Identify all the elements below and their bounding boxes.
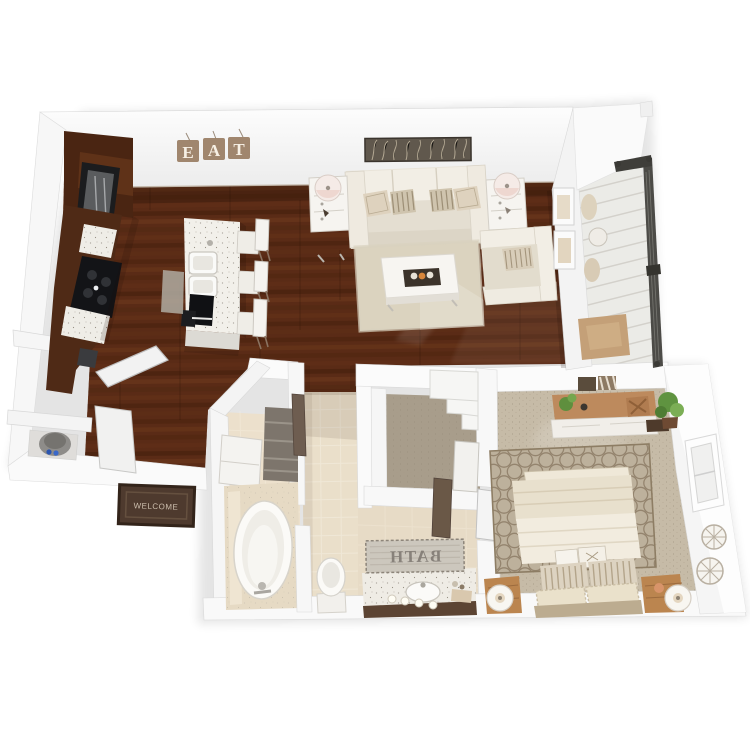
svg-text:BATH: BATH: [388, 547, 441, 567]
svg-text:T: T: [233, 140, 245, 159]
svg-text:E: E: [182, 143, 193, 162]
svg-text:WELCOME: WELCOME: [133, 501, 178, 512]
svg-text:A: A: [208, 141, 221, 160]
